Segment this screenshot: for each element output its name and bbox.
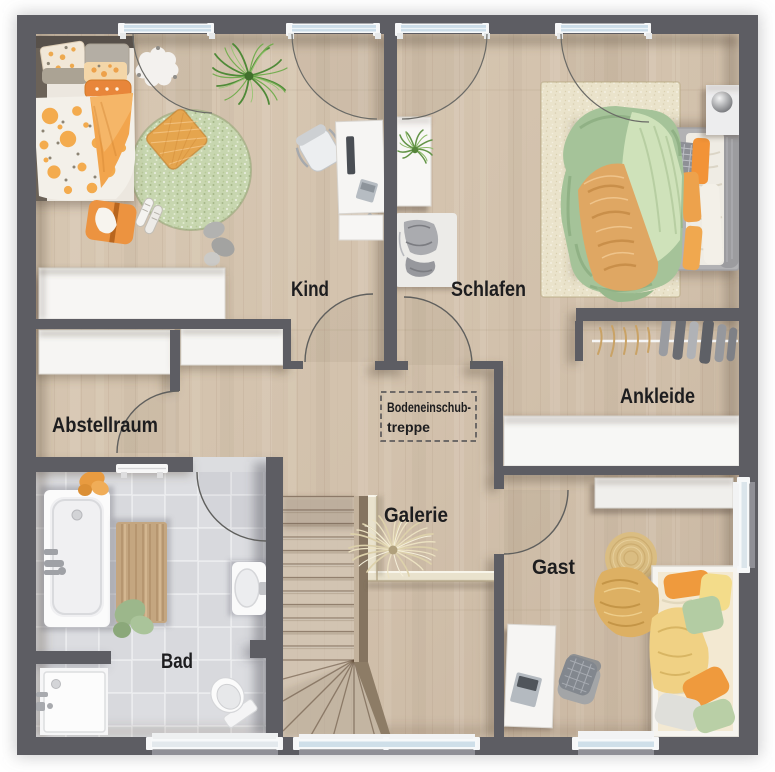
svg-text:Kind: Kind: [291, 278, 329, 301]
svg-text:Galerie: Galerie: [384, 504, 448, 527]
svg-text:Gast: Gast: [532, 556, 575, 579]
svg-text:treppe: treppe: [387, 420, 431, 435]
svg-text:Bad: Bad: [161, 650, 193, 673]
svg-text:Abstellraum: Abstellraum: [52, 414, 158, 437]
svg-text:Schlafen: Schlafen: [451, 278, 526, 301]
svg-text:Ankleide: Ankleide: [620, 385, 695, 408]
svg-text:Bodeneinschub-: Bodeneinschub-: [387, 400, 471, 415]
